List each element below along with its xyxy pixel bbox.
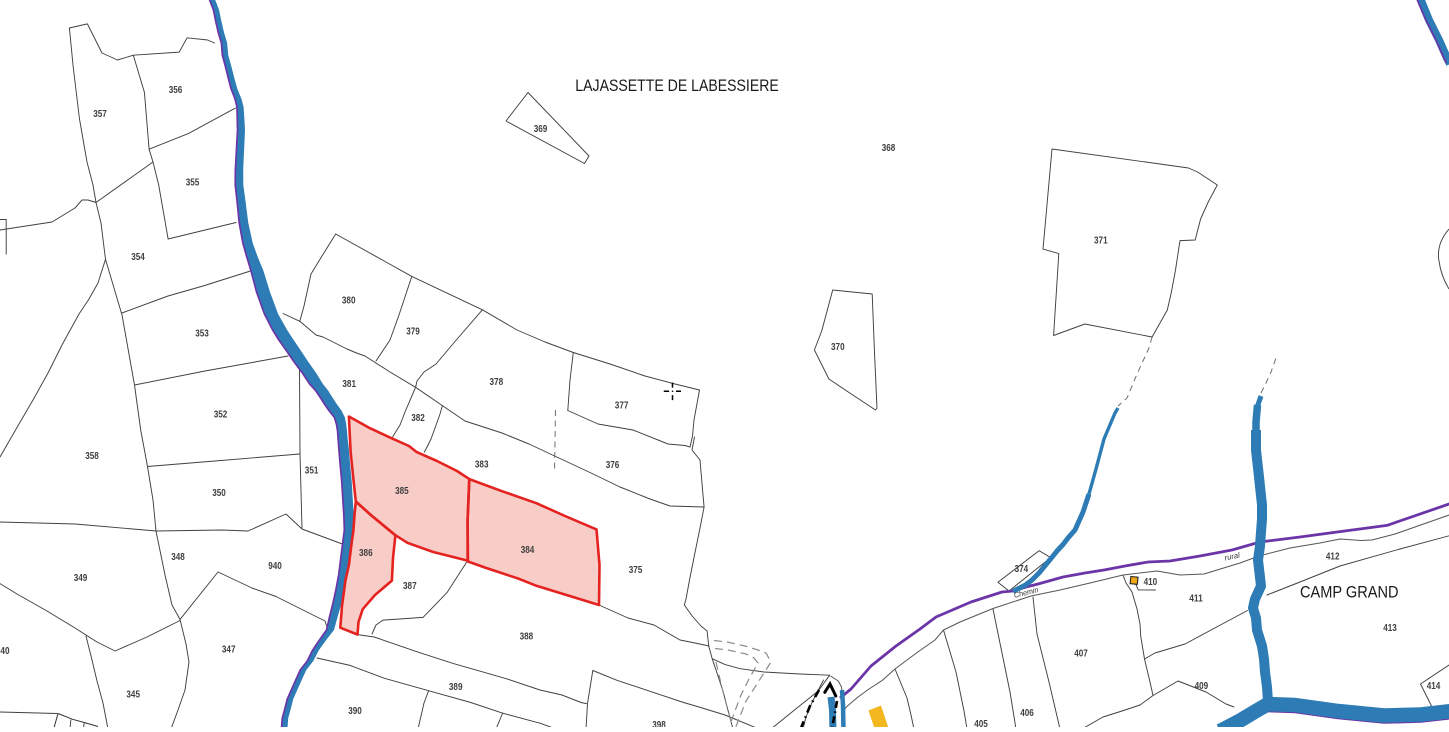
svg-text:389: 389: [449, 682, 463, 693]
svg-text:378: 378: [490, 377, 504, 388]
svg-text:350: 350: [212, 488, 226, 499]
svg-text:352: 352: [214, 409, 228, 420]
svg-text:348: 348: [171, 552, 185, 563]
svg-text:381: 381: [342, 379, 356, 390]
svg-text:356: 356: [169, 85, 183, 96]
svg-text:375: 375: [629, 565, 643, 576]
svg-text:354: 354: [131, 252, 145, 263]
svg-text:368: 368: [882, 143, 896, 154]
svg-text:409: 409: [1195, 681, 1209, 692]
svg-text:384: 384: [521, 545, 535, 556]
svg-text:371: 371: [1094, 235, 1108, 246]
svg-text:369: 369: [534, 124, 548, 135]
svg-text:411: 411: [1189, 593, 1203, 604]
svg-text:412: 412: [1326, 551, 1340, 562]
svg-text:355: 355: [186, 177, 200, 188]
svg-text:414: 414: [1427, 681, 1441, 692]
svg-text:379: 379: [406, 327, 420, 338]
svg-text:383: 383: [475, 460, 489, 471]
svg-text:345: 345: [126, 689, 140, 700]
svg-text:390: 390: [348, 706, 362, 717]
svg-text:358: 358: [85, 451, 99, 462]
svg-text:LAJASSETTE DE LABESSIERE: LAJASSETTE DE LABESSIERE: [575, 76, 779, 95]
svg-text:351: 351: [305, 465, 319, 476]
svg-text:353: 353: [195, 328, 209, 339]
svg-text:374: 374: [1015, 564, 1029, 575]
svg-text:370: 370: [831, 342, 845, 353]
svg-text:CAMP GRAND: CAMP GRAND: [1300, 583, 1399, 602]
svg-text:376: 376: [606, 460, 620, 471]
svg-text:357: 357: [93, 109, 107, 120]
svg-text:385: 385: [395, 486, 409, 497]
svg-text:398: 398: [652, 720, 666, 727]
svg-text:388: 388: [520, 631, 534, 642]
svg-text:377: 377: [615, 400, 629, 411]
svg-text:413: 413: [1383, 623, 1397, 634]
svg-text:406: 406: [1020, 708, 1034, 719]
svg-text:387: 387: [403, 581, 417, 592]
svg-text:347: 347: [222, 644, 236, 655]
svg-text:382: 382: [411, 413, 425, 424]
svg-text:407: 407: [1074, 648, 1088, 659]
svg-text:349: 349: [74, 573, 88, 584]
svg-text:40: 40: [0, 646, 9, 657]
svg-text:386: 386: [359, 548, 373, 559]
svg-text:405: 405: [974, 719, 988, 727]
svg-text:380: 380: [342, 295, 356, 306]
svg-text:940: 940: [268, 561, 282, 572]
svg-text:410: 410: [1144, 577, 1158, 588]
